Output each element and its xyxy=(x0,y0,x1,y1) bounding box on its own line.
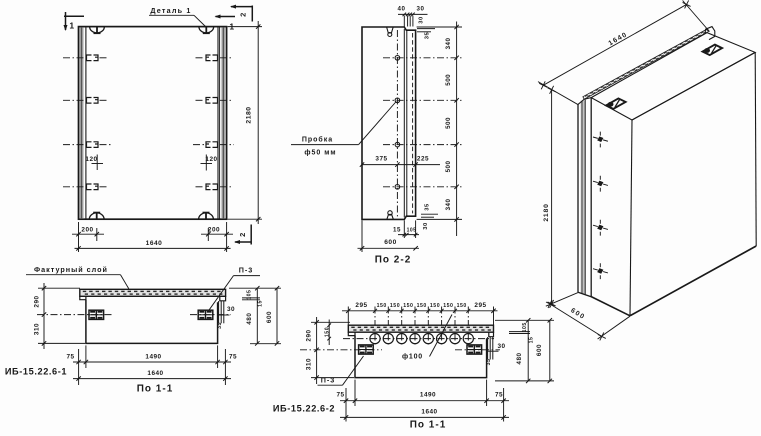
svg-text:105: 105 xyxy=(407,228,417,234)
svg-text:290: 290 xyxy=(306,329,313,341)
svg-text:1: 1 xyxy=(69,21,74,31)
svg-text:ИБ-15.22.6-1: ИБ-15.22.6-1 xyxy=(5,367,67,377)
svg-text:Деталь 1: Деталь 1 xyxy=(150,6,191,15)
svg-text:150: 150 xyxy=(377,303,387,309)
svg-text:1490: 1490 xyxy=(145,354,161,361)
svg-text:1640: 1640 xyxy=(421,409,437,416)
svg-text:1640: 1640 xyxy=(147,370,163,377)
svg-text:Пробка: Пробка xyxy=(302,136,333,144)
svg-text:35: 35 xyxy=(425,32,431,40)
svg-text:150: 150 xyxy=(325,327,331,337)
svg-text:290: 290 xyxy=(33,295,40,307)
svg-text:40: 40 xyxy=(398,5,406,12)
svg-text:2: 2 xyxy=(238,232,247,237)
svg-text:75: 75 xyxy=(229,354,237,361)
svg-text:ф100: ф100 xyxy=(402,354,423,361)
svg-text:2: 2 xyxy=(239,12,248,17)
svg-text:150: 150 xyxy=(443,303,453,309)
svg-text:Фактурный слой: Фактурный слой xyxy=(34,265,108,274)
svg-text:П-3: П-3 xyxy=(239,266,254,275)
svg-text:150: 150 xyxy=(417,303,427,309)
svg-text:225: 225 xyxy=(417,155,429,162)
svg-text:30: 30 xyxy=(418,16,424,23)
svg-text:По 2-2: По 2-2 xyxy=(375,255,412,266)
svg-text:480: 480 xyxy=(246,313,253,325)
svg-text:15: 15 xyxy=(258,300,264,307)
svg-text:340: 340 xyxy=(445,199,452,211)
svg-text:375: 375 xyxy=(375,155,387,162)
svg-text:30: 30 xyxy=(423,222,429,229)
svg-text:ИБ-15.22.6-2: ИБ-15.22.6-2 xyxy=(273,404,335,414)
svg-text:120: 120 xyxy=(205,156,217,163)
svg-text:150: 150 xyxy=(403,303,413,309)
svg-text:295: 295 xyxy=(474,302,486,309)
svg-text:310: 310 xyxy=(33,323,40,335)
svg-text:480: 480 xyxy=(516,352,523,364)
svg-text:П-3: П-3 xyxy=(321,375,336,384)
svg-text:295: 295 xyxy=(355,302,367,309)
svg-text:75: 75 xyxy=(495,392,503,399)
svg-text:2180: 2180 xyxy=(246,106,253,123)
svg-text:15: 15 xyxy=(529,337,535,344)
svg-text:105: 105 xyxy=(247,290,253,300)
svg-text:120: 120 xyxy=(85,156,97,163)
svg-text:По 1-1: По 1-1 xyxy=(410,420,447,431)
svg-text:1640: 1640 xyxy=(146,240,163,247)
svg-text:1: 1 xyxy=(229,22,234,32)
svg-text:ф50 мм: ф50 мм xyxy=(304,150,336,157)
svg-text:150: 150 xyxy=(390,303,400,309)
svg-text:35: 35 xyxy=(217,322,223,329)
svg-text:600: 600 xyxy=(536,344,543,356)
svg-text:600: 600 xyxy=(384,239,397,246)
svg-text:200: 200 xyxy=(208,227,220,234)
svg-text:1490: 1490 xyxy=(420,392,436,399)
svg-text:30: 30 xyxy=(227,306,235,313)
svg-text:500: 500 xyxy=(445,117,452,129)
svg-text:2180: 2180 xyxy=(543,203,550,221)
svg-text:75: 75 xyxy=(336,392,344,399)
svg-text:30: 30 xyxy=(417,5,425,12)
svg-text:600: 600 xyxy=(266,311,273,323)
svg-text:35: 35 xyxy=(486,359,492,366)
svg-text:По 1-1: По 1-1 xyxy=(137,384,174,395)
svg-text:500: 500 xyxy=(445,74,452,86)
svg-text:340: 340 xyxy=(445,38,452,50)
svg-text:310: 310 xyxy=(306,358,313,370)
svg-text:30: 30 xyxy=(497,343,505,350)
svg-text:35: 35 xyxy=(425,203,431,211)
svg-text:500: 500 xyxy=(445,161,452,173)
svg-text:150: 150 xyxy=(457,303,467,309)
svg-text:105: 105 xyxy=(522,322,528,332)
svg-text:75: 75 xyxy=(66,354,74,361)
svg-text:200: 200 xyxy=(81,227,93,234)
svg-text:150: 150 xyxy=(430,303,440,309)
svg-text:15: 15 xyxy=(393,227,401,234)
